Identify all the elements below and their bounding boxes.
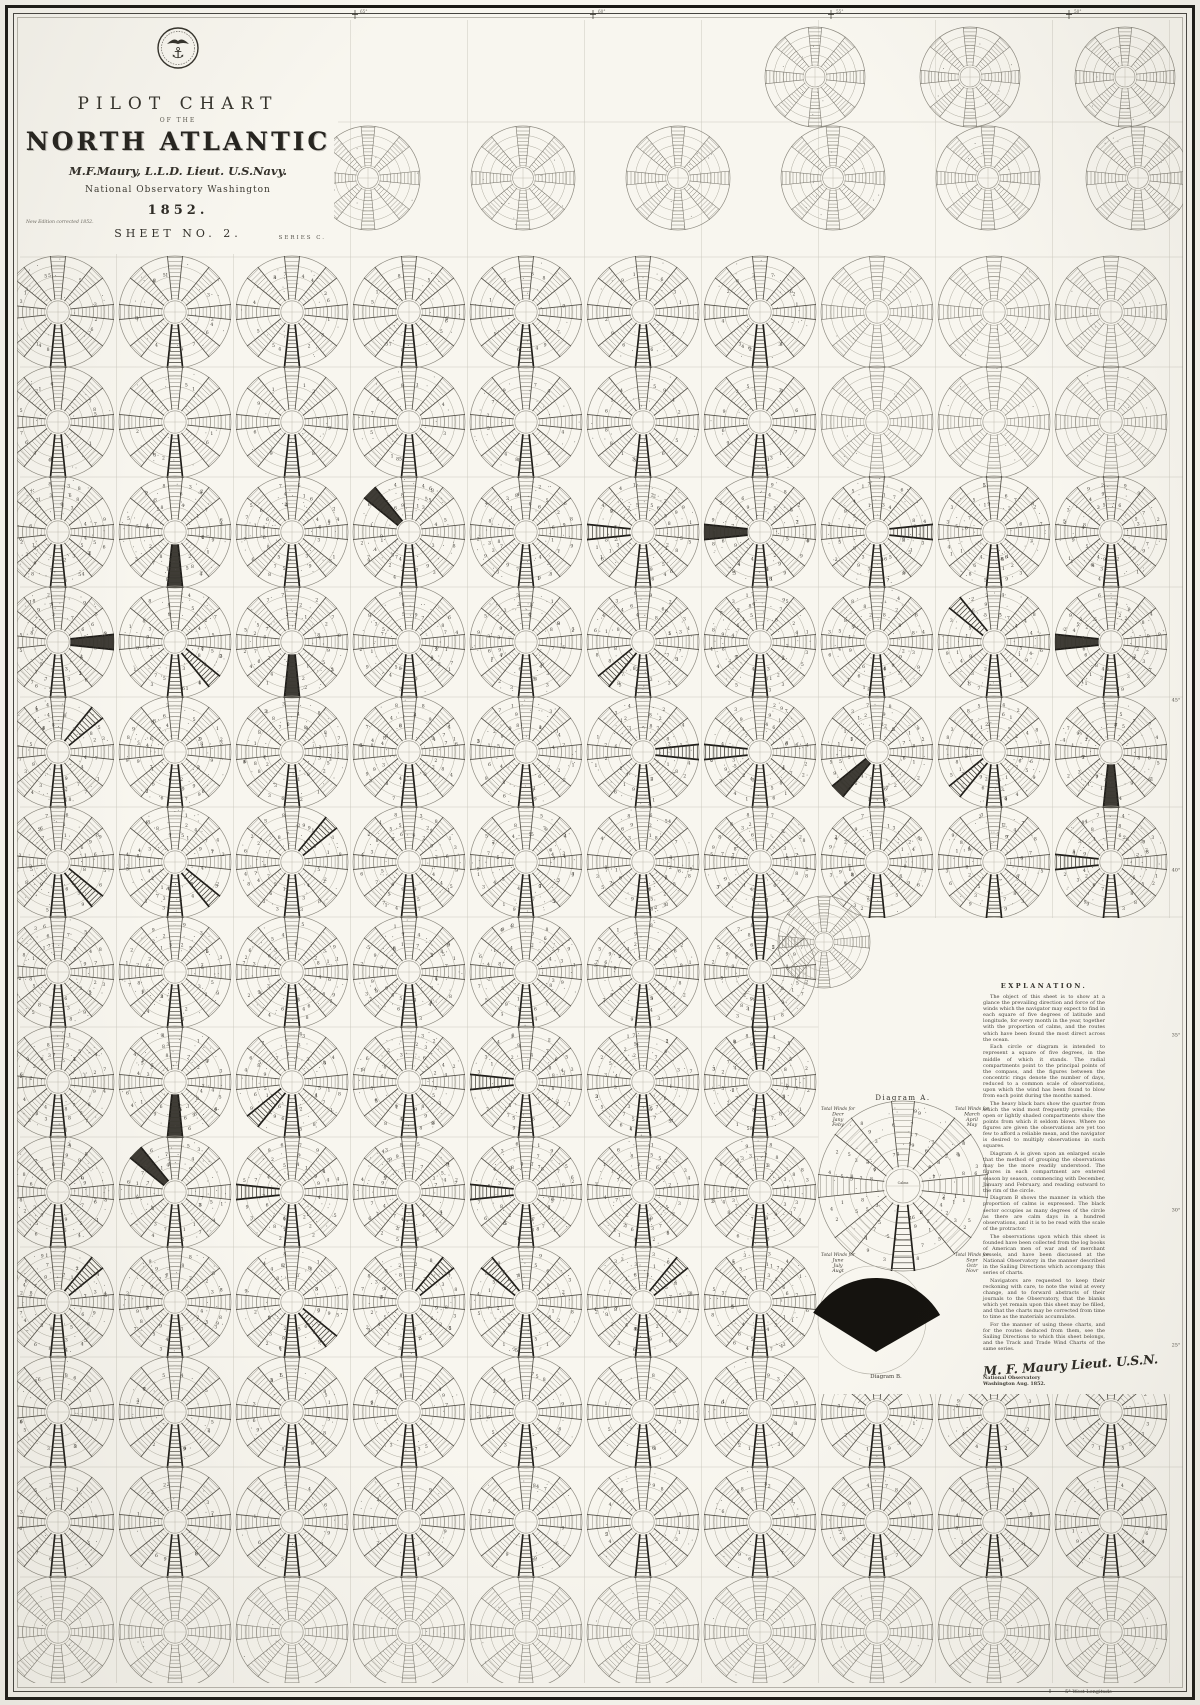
- svg-text:5: 5: [710, 852, 713, 858]
- svg-text:2: 2: [922, 737, 925, 743]
- svg-text:3: 3: [975, 1164, 978, 1170]
- longitude-tick-label: 60°: [598, 9, 605, 14]
- svg-text:9: 9: [1087, 487, 1090, 493]
- svg-text:2: 2: [1063, 520, 1066, 526]
- svg-text:9: 9: [984, 602, 987, 608]
- svg-text:8: 8: [916, 1256, 919, 1262]
- svg-text:7: 7: [318, 636, 321, 642]
- svg-text:4: 4: [216, 838, 219, 844]
- wind-rose: 3213279478875781831979523698138489: [938, 806, 1050, 918]
- svg-text:8: 8: [937, 1160, 940, 1166]
- svg-text:7: 7: [1096, 774, 1099, 780]
- svg-text:9: 9: [332, 992, 335, 998]
- wind-rose: 6899746515: [470, 256, 582, 368]
- svg-text:7: 7: [141, 1170, 144, 1176]
- svg-text:3: 3: [324, 291, 327, 297]
- svg-text:5: 5: [771, 786, 774, 792]
- svg-text:5: 5: [126, 866, 129, 872]
- wind-rose: 875775778845591681497132371412937: [1055, 696, 1167, 808]
- svg-text:5: 5: [360, 743, 363, 749]
- svg-text:7: 7: [254, 1178, 257, 1184]
- svg-text:7: 7: [444, 630, 447, 636]
- svg-text:2: 2: [674, 1279, 677, 1285]
- svg-text:2: 2: [1015, 734, 1018, 740]
- svg-text:3: 3: [385, 341, 388, 347]
- svg-text:3: 3: [890, 883, 893, 889]
- svg-text:4: 4: [399, 556, 402, 562]
- svg-text:4: 4: [601, 503, 604, 509]
- svg-text:3: 3: [160, 1347, 163, 1353]
- svg-text:3: 3: [678, 1420, 681, 1426]
- svg-text:8: 8: [735, 955, 738, 961]
- svg-text:3: 3: [546, 682, 549, 688]
- wind-rose: 598313245148: [587, 1466, 699, 1578]
- svg-text:5: 5: [375, 1098, 378, 1104]
- diagram-a-corner-label: Sepr: [966, 1257, 978, 1263]
- svg-text:2: 2: [150, 1065, 153, 1071]
- svg-text:6: 6: [884, 786, 887, 792]
- svg-text:5: 5: [601, 885, 604, 891]
- svg-text:3: 3: [768, 1252, 771, 1258]
- svg-text:2: 2: [389, 563, 392, 569]
- svg-text:2: 2: [35, 389, 38, 395]
- svg-text:5: 5: [52, 557, 55, 563]
- svg-text:1: 1: [866, 1446, 869, 1452]
- svg-text:2: 2: [659, 716, 662, 722]
- svg-text:8: 8: [549, 983, 552, 989]
- svg-text:5: 5: [79, 278, 82, 284]
- svg-text:4: 4: [181, 1373, 184, 1379]
- svg-text:4: 4: [64, 797, 67, 803]
- svg-text:8: 8: [851, 599, 854, 605]
- svg-text:5: 5: [402, 612, 405, 618]
- svg-text:9: 9: [675, 657, 678, 663]
- svg-text:4: 4: [390, 715, 393, 721]
- svg-text:5: 5: [317, 867, 320, 873]
- svg-text:5: 5: [318, 1086, 321, 1092]
- svg-text:3: 3: [646, 557, 649, 563]
- svg-text:6: 6: [748, 1557, 751, 1563]
- svg-text:7: 7: [537, 1154, 540, 1160]
- wind-rose: 938543172163: [704, 1356, 816, 1468]
- wind-rose: 8947533263: [353, 1356, 465, 1468]
- svg-text:5: 5: [732, 1259, 735, 1265]
- svg-text:3: 3: [453, 1313, 456, 1319]
- svg-text:9: 9: [750, 1042, 753, 1048]
- svg-text:2: 2: [254, 1309, 257, 1315]
- svg-text:5: 5: [795, 1400, 798, 1406]
- svg-text:1: 1: [597, 734, 600, 740]
- svg-text:4: 4: [181, 503, 184, 509]
- svg-text:8: 8: [270, 1378, 273, 1384]
- svg-text:1: 1: [312, 828, 315, 834]
- svg-text:7: 7: [454, 1181, 457, 1187]
- svg-text:3: 3: [442, 1282, 445, 1288]
- svg-text:1: 1: [796, 1085, 799, 1091]
- svg-text:8: 8: [1134, 900, 1137, 906]
- svg-text:6: 6: [487, 1415, 490, 1421]
- svg-text:9: 9: [367, 558, 370, 564]
- svg-text:8: 8: [727, 1210, 730, 1216]
- svg-text:3: 3: [317, 537, 320, 543]
- svg-text:2: 2: [634, 942, 637, 948]
- wind-rose: 71712366949369563732881636799379242: [821, 806, 933, 918]
- svg-text:1: 1: [932, 1174, 935, 1180]
- svg-text:6: 6: [903, 756, 906, 762]
- svg-text:4: 4: [394, 483, 397, 489]
- svg-text:5: 5: [786, 536, 789, 542]
- svg-text:6: 6: [493, 1498, 496, 1504]
- svg-text:4: 4: [332, 1055, 335, 1061]
- svg-text:9: 9: [41, 1253, 44, 1259]
- svg-text:9: 9: [1158, 632, 1161, 638]
- svg-text:7: 7: [622, 1112, 625, 1118]
- svg-text:1: 1: [568, 1101, 571, 1107]
- latitude-label: 35°: [1172, 1033, 1181, 1039]
- svg-text:8: 8: [870, 1176, 873, 1182]
- svg-text:5: 5: [895, 892, 898, 898]
- svg-text:1: 1: [24, 291, 27, 297]
- svg-text:1: 1: [447, 1163, 450, 1169]
- svg-text:8: 8: [441, 767, 444, 773]
- svg-text:4: 4: [1001, 593, 1004, 599]
- svg-text:6: 6: [672, 1103, 675, 1109]
- svg-text:9: 9: [305, 726, 308, 732]
- svg-text:2: 2: [683, 773, 686, 779]
- wind-rose: [765, 27, 865, 127]
- svg-text:4: 4: [62, 787, 65, 793]
- svg-text:3: 3: [782, 1095, 785, 1101]
- svg-text:2: 2: [430, 657, 433, 663]
- svg-text:3: 3: [898, 671, 901, 677]
- svg-text:7: 7: [632, 1033, 635, 1039]
- wind-rose: 49818675288433372155695777532134: [470, 1026, 582, 1138]
- svg-text:8: 8: [679, 981, 682, 987]
- svg-text:1: 1: [197, 1038, 200, 1044]
- svg-text:1: 1: [627, 1034, 630, 1040]
- svg-text:8: 8: [511, 1165, 514, 1171]
- svg-text:4: 4: [668, 819, 671, 825]
- svg-text:9: 9: [328, 425, 331, 431]
- svg-text:3: 3: [1079, 617, 1082, 623]
- svg-text:9: 9: [415, 677, 418, 683]
- svg-text:7: 7: [48, 944, 51, 950]
- svg-text:1: 1: [1001, 823, 1004, 829]
- svg-text:3: 3: [253, 1401, 256, 1407]
- svg-text:5: 5: [191, 606, 194, 612]
- svg-text:2: 2: [315, 598, 318, 604]
- svg-text:7: 7: [731, 524, 734, 530]
- svg-text:3: 3: [328, 521, 331, 527]
- svg-text:2: 2: [253, 631, 256, 637]
- svg-text:8: 8: [498, 539, 501, 545]
- svg-text:4: 4: [207, 1429, 210, 1435]
- svg-text:7: 7: [393, 1214, 396, 1220]
- svg-text:4: 4: [883, 666, 886, 672]
- svg-text:8: 8: [278, 835, 281, 841]
- svg-text:4: 4: [435, 646, 438, 652]
- svg-text:7: 7: [848, 864, 851, 870]
- svg-text:2: 2: [434, 1071, 437, 1077]
- svg-text:8: 8: [712, 628, 715, 634]
- svg-text:5: 5: [764, 557, 767, 563]
- svg-text:2: 2: [963, 1225, 966, 1231]
- svg-text:8: 8: [711, 1312, 714, 1318]
- svg-text:3: 3: [848, 524, 851, 530]
- svg-text:3: 3: [369, 779, 372, 785]
- svg-text:5: 5: [257, 329, 260, 335]
- svg-text:2: 2: [781, 891, 784, 897]
- svg-text:4: 4: [96, 1272, 99, 1278]
- observatory-seal-icon: ⚓: [154, 24, 202, 72]
- svg-text:9: 9: [26, 1057, 29, 1063]
- svg-text:1: 1: [453, 736, 456, 742]
- svg-text:4: 4: [625, 1322, 628, 1328]
- svg-text:4: 4: [503, 1378, 506, 1384]
- svg-text:6: 6: [484, 1216, 487, 1222]
- svg-text:5: 5: [492, 1430, 495, 1436]
- svg-text:6: 6: [104, 1293, 107, 1299]
- svg-text:9: 9: [1130, 781, 1133, 787]
- svg-text:2: 2: [1064, 872, 1067, 878]
- svg-text:3: 3: [375, 1389, 378, 1395]
- svg-text:2: 2: [151, 1489, 154, 1495]
- svg-text:3: 3: [33, 1205, 36, 1211]
- svg-text:1: 1: [165, 273, 168, 279]
- svg-text:5: 5: [257, 623, 260, 629]
- svg-text:5: 5: [80, 1221, 83, 1227]
- wind-rose: [119, 1576, 231, 1688]
- svg-text:3: 3: [961, 772, 964, 778]
- svg-text:2: 2: [511, 1055, 514, 1061]
- svg-text:3: 3: [683, 617, 686, 623]
- svg-text:6: 6: [885, 798, 888, 804]
- svg-text:4: 4: [444, 1178, 447, 1184]
- svg-text:7: 7: [143, 1387, 146, 1393]
- svg-text:3: 3: [211, 1289, 214, 1295]
- svg-text:5: 5: [29, 742, 32, 748]
- svg-text:3: 3: [869, 886, 872, 892]
- svg-text:6: 6: [20, 1072, 23, 1078]
- svg-text:5: 5: [193, 717, 196, 723]
- svg-text:7: 7: [516, 567, 519, 573]
- svg-text:4: 4: [733, 791, 736, 797]
- svg-text:2: 2: [29, 864, 32, 870]
- svg-text:2: 2: [664, 499, 667, 505]
- svg-text:3: 3: [276, 906, 279, 912]
- svg-text:2: 2: [325, 622, 328, 628]
- svg-text:1: 1: [844, 729, 847, 735]
- svg-text:5: 5: [891, 773, 894, 779]
- svg-text:7: 7: [85, 1119, 88, 1125]
- svg-text:6: 6: [20, 1419, 23, 1425]
- svg-text:8: 8: [85, 1151, 88, 1157]
- svg-text:6: 6: [160, 1104, 163, 1110]
- svg-text:3: 3: [214, 1325, 217, 1331]
- svg-text:8: 8: [254, 761, 257, 767]
- svg-text:1: 1: [370, 523, 373, 529]
- svg-text:8: 8: [399, 666, 402, 672]
- svg-text:3: 3: [50, 1238, 53, 1244]
- svg-text:5: 5: [780, 1268, 783, 1274]
- svg-text:8: 8: [137, 980, 140, 986]
- svg-text:3: 3: [668, 681, 671, 687]
- svg-text:4: 4: [34, 1378, 37, 1384]
- svg-text:7: 7: [655, 1055, 658, 1061]
- svg-text:1: 1: [76, 1487, 79, 1493]
- svg-text:8: 8: [181, 1016, 184, 1022]
- svg-text:2: 2: [985, 776, 988, 782]
- svg-text:3: 3: [950, 618, 953, 624]
- svg-text:3: 3: [47, 1446, 50, 1452]
- svg-text:7: 7: [389, 342, 392, 348]
- wind-rose: [938, 1576, 1050, 1688]
- svg-text:4: 4: [687, 1175, 690, 1181]
- svg-text:6: 6: [400, 1252, 403, 1258]
- svg-text:7: 7: [795, 430, 798, 436]
- svg-text:3: 3: [736, 1013, 739, 1019]
- svg-text:1: 1: [605, 629, 608, 635]
- svg-text:3: 3: [546, 671, 549, 677]
- svg-text:3: 3: [712, 1067, 715, 1073]
- svg-text:1: 1: [453, 956, 456, 962]
- svg-text:7: 7: [719, 610, 722, 616]
- svg-text:9: 9: [907, 880, 910, 886]
- svg-text:2: 2: [93, 738, 96, 744]
- svg-text:1: 1: [742, 727, 745, 733]
- svg-text:6: 6: [19, 537, 22, 543]
- svg-text:8: 8: [1020, 855, 1023, 861]
- svg-text:6: 6: [281, 1007, 284, 1013]
- svg-text:2: 2: [984, 666, 987, 672]
- svg-text:5: 5: [417, 1142, 420, 1148]
- svg-text:2: 2: [626, 1213, 629, 1219]
- svg-text:7: 7: [34, 1284, 37, 1290]
- svg-text:5: 5: [680, 536, 683, 542]
- svg-text:9: 9: [746, 505, 749, 511]
- svg-text:9: 9: [401, 1116, 404, 1122]
- svg-text:5: 5: [425, 1444, 428, 1450]
- svg-text:9: 9: [632, 787, 635, 793]
- svg-text:3: 3: [673, 289, 676, 295]
- svg-text:9: 9: [1076, 1539, 1079, 1545]
- svg-text:7: 7: [1147, 1526, 1150, 1532]
- svg-text:2: 2: [611, 1322, 614, 1328]
- wind-rose: 88319279714745318939846566619434652594: [119, 1026, 231, 1138]
- svg-text:4: 4: [561, 429, 564, 435]
- svg-text:3: 3: [194, 1111, 197, 1117]
- svg-text:1: 1: [84, 853, 87, 859]
- svg-text:1: 1: [1089, 672, 1092, 678]
- svg-text:7: 7: [154, 673, 157, 679]
- svg-text:3: 3: [506, 496, 509, 502]
- svg-text:9: 9: [181, 347, 184, 353]
- svg-text:1: 1: [1005, 775, 1008, 781]
- svg-text:3: 3: [679, 630, 682, 636]
- svg-text:3: 3: [637, 1162, 640, 1168]
- svg-text:5: 5: [250, 503, 253, 509]
- svg-text:9: 9: [649, 1337, 652, 1343]
- svg-text:8: 8: [161, 505, 164, 511]
- svg-text:2: 2: [605, 317, 608, 323]
- svg-text:2: 2: [651, 492, 654, 498]
- svg-text:3: 3: [783, 846, 786, 852]
- svg-text:6: 6: [151, 720, 154, 726]
- svg-text:9: 9: [146, 635, 149, 641]
- svg-text:1: 1: [283, 1217, 286, 1223]
- svg-text:9: 9: [137, 759, 140, 765]
- svg-text:5: 5: [371, 299, 374, 305]
- svg-text:2: 2: [181, 1237, 184, 1243]
- svg-text:5: 5: [1086, 544, 1089, 550]
- svg-text:1: 1: [517, 1236, 520, 1242]
- svg-text:3: 3: [1029, 1399, 1032, 1405]
- svg-text:9: 9: [435, 1306, 438, 1312]
- svg-text:3: 3: [371, 850, 374, 856]
- svg-text:4: 4: [263, 964, 266, 970]
- svg-text:7: 7: [672, 772, 675, 778]
- svg-text:8: 8: [746, 1034, 749, 1040]
- svg-text:5: 5: [157, 507, 160, 513]
- svg-text:1: 1: [736, 1122, 739, 1128]
- svg-text:8: 8: [736, 1158, 739, 1164]
- svg-text:9: 9: [508, 1277, 511, 1283]
- svg-text:3: 3: [971, 671, 974, 677]
- svg-text:9: 9: [333, 945, 336, 951]
- svg-text:9: 9: [1025, 658, 1028, 664]
- svg-text:2: 2: [571, 628, 574, 634]
- svg-text:1: 1: [45, 1253, 48, 1259]
- svg-text:4: 4: [682, 723, 685, 729]
- svg-text:5: 5: [283, 1163, 286, 1169]
- svg-text:5: 5: [950, 772, 953, 778]
- svg-text:9: 9: [33, 545, 36, 551]
- svg-text:7: 7: [1015, 765, 1018, 771]
- svg-text:6: 6: [268, 954, 271, 960]
- svg-text:5: 5: [78, 572, 81, 578]
- svg-text:7: 7: [361, 1286, 364, 1292]
- svg-text:1: 1: [254, 741, 257, 747]
- svg-text:2: 2: [257, 841, 260, 847]
- svg-text:4: 4: [78, 1233, 81, 1239]
- svg-text:3: 3: [777, 1377, 780, 1383]
- svg-text:9: 9: [104, 631, 107, 637]
- svg-text:1: 1: [168, 1162, 171, 1168]
- svg-text:1: 1: [327, 850, 330, 856]
- svg-text:9: 9: [126, 758, 129, 764]
- svg-text:8: 8: [38, 1003, 41, 1009]
- svg-text:6: 6: [594, 628, 597, 634]
- svg-text:5: 5: [212, 632, 215, 638]
- svg-text:5: 5: [429, 498, 432, 504]
- svg-text:4: 4: [319, 974, 322, 980]
- svg-text:8: 8: [727, 882, 730, 888]
- wind-rose: 323634252425893899498916586581826: [353, 1026, 465, 1138]
- svg-text:7: 7: [254, 649, 257, 655]
- latitude-label: 30°: [1172, 1208, 1181, 1214]
- svg-text:2: 2: [152, 939, 155, 945]
- svg-text:8: 8: [541, 1167, 544, 1173]
- svg-text:3: 3: [552, 978, 555, 984]
- svg-text:3: 3: [752, 777, 755, 783]
- wind-rose: 848262561699847383719793938832134: [470, 476, 582, 588]
- svg-text:7: 7: [265, 627, 268, 633]
- svg-text:1: 1: [387, 1331, 390, 1337]
- svg-text:9: 9: [652, 1483, 655, 1489]
- svg-text:4: 4: [500, 764, 503, 770]
- svg-text:6: 6: [19, 1526, 22, 1532]
- svg-text:5: 5: [301, 922, 304, 928]
